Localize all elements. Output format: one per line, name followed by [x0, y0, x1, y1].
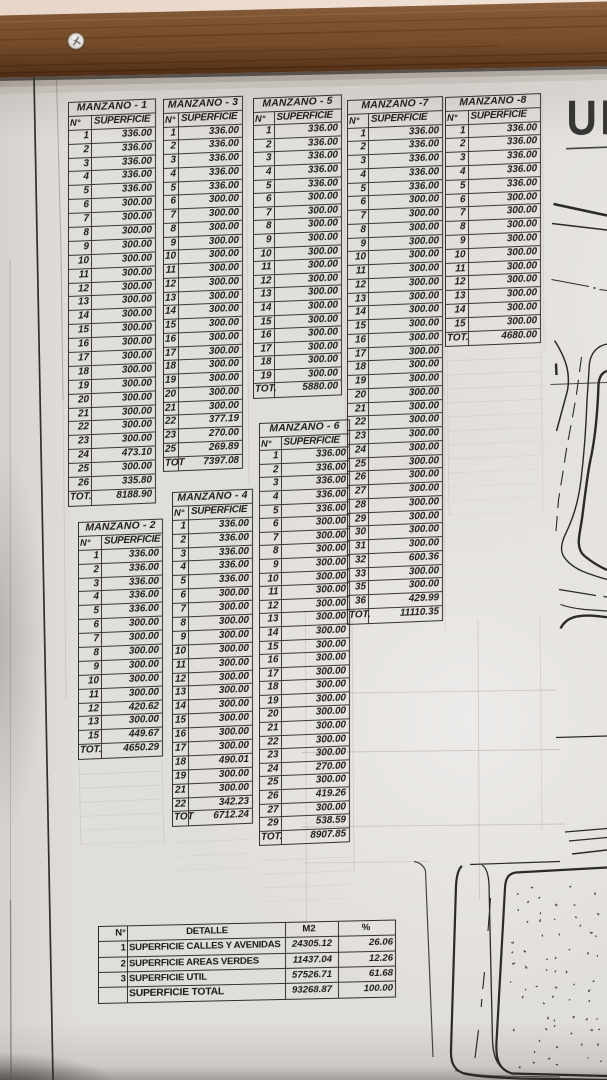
- svg-text:UR: UR: [567, 89, 607, 145]
